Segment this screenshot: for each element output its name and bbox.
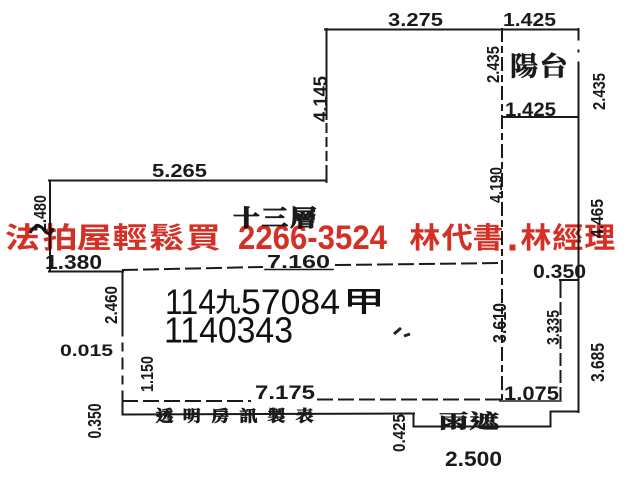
svg-text:1.075: 1.075 [504,384,560,405]
svg-text:1140343: 1140343 [164,310,293,351]
svg-text:4.145: 4.145 [311,76,332,122]
svg-text:1.425: 1.425 [505,100,556,121]
svg-text:4.190: 4.190 [486,167,506,203]
svg-text:3.335: 3.335 [543,310,563,345]
svg-text:2.460: 2.460 [101,286,121,324]
svg-text:0.350: 0.350 [533,262,586,283]
svg-text:0.015: 0.015 [60,341,113,360]
svg-text:1.150: 1.150 [137,356,157,392]
svg-text:0.425: 0.425 [389,414,409,452]
svg-text:3.275: 3.275 [388,10,443,30]
svg-text:1.380: 1.380 [45,252,102,274]
svg-text:3.685: 3.685 [587,343,608,382]
svg-text:7.175: 7.175 [255,383,316,404]
svg-text:3.610: 3.610 [489,303,510,343]
svg-text:2.435: 2.435 [589,73,609,110]
svg-text:0.350: 0.350 [84,404,105,439]
svg-text:2266-3524: 2266-3524 [238,219,387,257]
svg-text:2.435: 2.435 [483,46,503,83]
svg-text:1.425: 1.425 [503,10,556,30]
svg-text:5.265: 5.265 [152,161,207,181]
svg-text:2.500: 2.500 [445,448,502,471]
